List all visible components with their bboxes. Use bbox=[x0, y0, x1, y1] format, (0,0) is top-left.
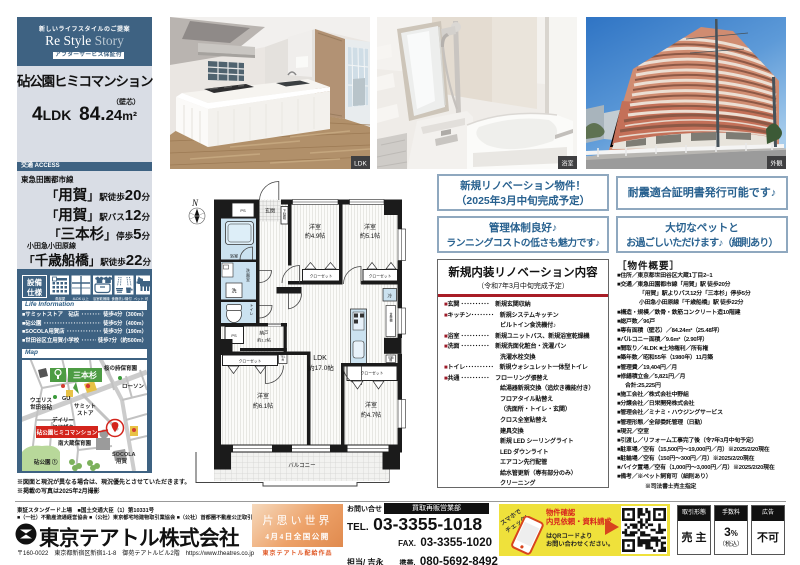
svg-text:洋室: 洋室 bbox=[309, 223, 321, 231]
svg-text:桜の詩保育園: 桜の詩保育園 bbox=[104, 364, 138, 372]
svg-text:ストア: ストア bbox=[77, 410, 94, 417]
svg-text:SOCOLA: SOCOLA bbox=[112, 452, 136, 458]
svg-text:LDK: LDK bbox=[354, 161, 367, 168]
svg-text:世田谷砧: 世田谷砧 bbox=[30, 403, 53, 411]
svg-text:外観: 外観 bbox=[770, 160, 782, 168]
svg-text:ウエリス: ウエリス bbox=[30, 396, 53, 404]
svg-text:洋室: 洋室 bbox=[257, 392, 269, 400]
svg-text:玄関: 玄関 bbox=[265, 208, 275, 215]
svg-text:浴室: 浴室 bbox=[561, 160, 573, 168]
svg-text:洗面室: 洗面室 bbox=[246, 267, 250, 282]
svg-text:砧公園 ①: 砧公園 ① bbox=[33, 458, 58, 466]
svg-text:約4.9帖: 約4.9帖 bbox=[305, 232, 325, 240]
svg-text:N: N bbox=[191, 198, 199, 208]
svg-text:三本杉: 三本杉 bbox=[73, 370, 97, 380]
svg-text:クローゼット: クローゼット bbox=[239, 359, 262, 364]
svg-text:冷: 冷 bbox=[388, 293, 393, 300]
svg-text:約6.1帖: 約6.1帖 bbox=[253, 402, 273, 410]
svg-text:洋室: 洋室 bbox=[364, 223, 376, 231]
svg-text:サミット: サミット bbox=[74, 403, 96, 410]
svg-text:GU: GU bbox=[62, 396, 70, 402]
svg-text:約17.0帖: 約17.0帖 bbox=[308, 363, 334, 372]
svg-text:約4.7帖: 約4.7帖 bbox=[361, 411, 381, 419]
svg-text:デイリー: デイリー bbox=[52, 416, 75, 424]
svg-text:食器棚: 食器棚 bbox=[389, 311, 392, 322]
svg-text:洗: 洗 bbox=[231, 288, 236, 295]
svg-text:クローゼット: クローゼット bbox=[369, 274, 392, 279]
svg-text:バルコニー: バルコニー bbox=[288, 462, 315, 469]
svg-text:納戸: 納戸 bbox=[260, 330, 269, 337]
svg-text:南大蔵保育園: 南大蔵保育園 bbox=[58, 439, 92, 447]
svg-text:砧公園ヒミコマンション: 砧公園ヒミコマンション bbox=[36, 429, 98, 437]
svg-text:ローソン: ローソン bbox=[122, 383, 145, 390]
svg-text:クローゼット: クローゼット bbox=[310, 274, 333, 279]
svg-text:浴室: 浴室 bbox=[230, 253, 238, 260]
svg-text:クローゼット: クローゼット bbox=[361, 371, 384, 376]
svg-text:PS: PS bbox=[240, 208, 246, 213]
svg-text:約1.2帖: 約1.2帖 bbox=[257, 337, 271, 343]
svg-text:トイレ: トイレ bbox=[250, 304, 254, 316]
svg-text:約5.1帖: 約5.1帖 bbox=[360, 232, 380, 240]
svg-text:洋室: 洋室 bbox=[365, 401, 377, 409]
svg-text:LDK: LDK bbox=[313, 355, 327, 362]
svg-text:用賀: 用賀 bbox=[115, 457, 128, 465]
svg-text:PS: PS bbox=[231, 333, 237, 338]
